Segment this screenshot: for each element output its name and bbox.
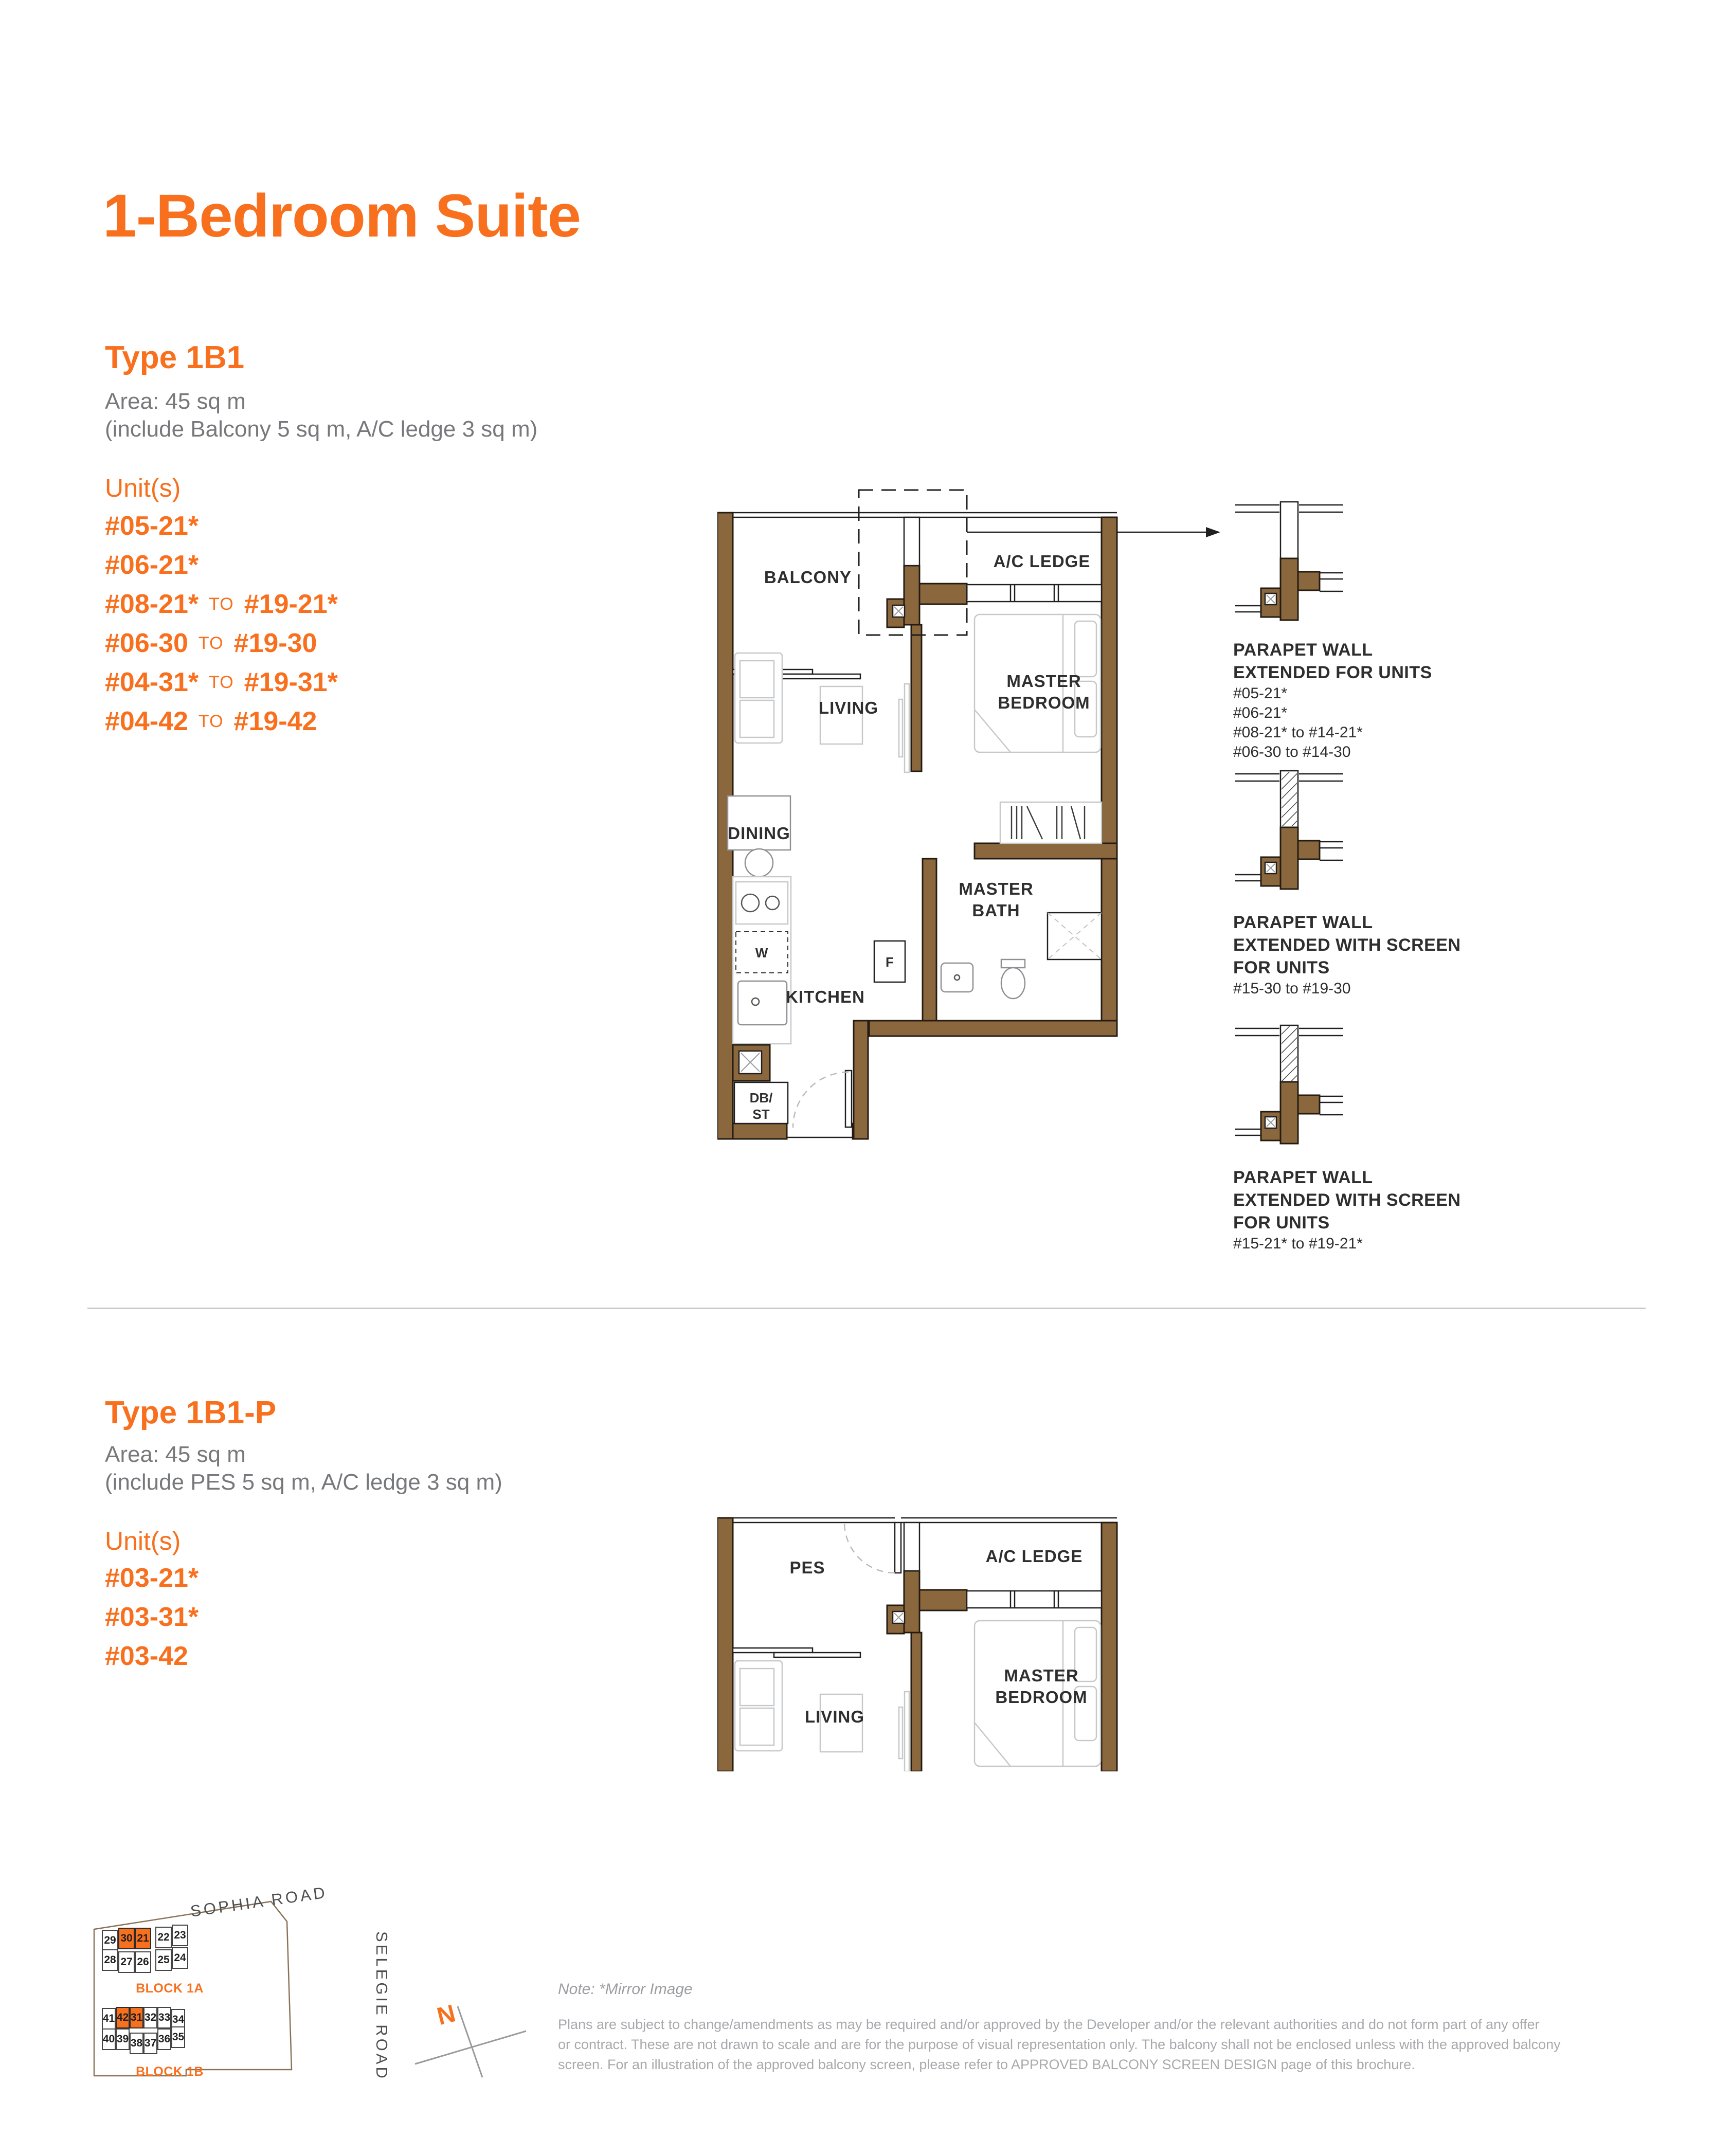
block-label-2: BLOCK 1B (136, 2064, 204, 2079)
label-master-bath-1: MASTER (959, 879, 1033, 898)
label-washer: W (755, 945, 768, 961)
unit-range: #03-42 (105, 1642, 199, 1670)
unit-range: #04-31*TO#19-31* (105, 668, 338, 696)
disclaimer-line-3: screen. For an illustration of the appro… (558, 2055, 1561, 2075)
label-fridge: F (886, 954, 894, 970)
type-1b1-heading: Type 1B1 (105, 339, 244, 376)
parapet-unit-line: #08-21* to #14-21* (1233, 723, 1475, 742)
map-unit-39: 39 (116, 2028, 130, 2050)
type-1b1p-units-list: #03-21*#03-31*#03-42 (105, 1564, 199, 1681)
map-unit-27: 27 (118, 1951, 135, 1973)
label-living: LIVING (819, 698, 878, 717)
parapet-figure-2 (1235, 769, 1343, 895)
unit-to-word: TO (199, 594, 244, 614)
road-label-selegie: SELEGIE ROAD (372, 1931, 391, 2081)
type-1b1p-area-include: (include PES 5 sq m, A/C ledge 3 sq m) (105, 1467, 502, 1497)
unit-to: #19-30 (234, 628, 317, 659)
label-ac-ledge: A/C LEDGE (994, 552, 1091, 571)
type-1b1p-heading: Type 1B1-P (105, 1394, 276, 1431)
page-title: 1-Bedroom Suite (103, 181, 581, 251)
map-unit-32: 32 (143, 2007, 157, 2028)
block-label-1: BLOCK 1A (136, 1981, 204, 1996)
section-divider (87, 1308, 1646, 1309)
unit-to: #19-21* (244, 589, 338, 620)
type-1b1p-units-label: Unit(s) (105, 1526, 181, 1556)
map-unit-37: 37 (143, 2033, 157, 2054)
unit-from: #05-21* (105, 511, 199, 541)
unit-to-word: TO (188, 633, 234, 654)
unit-range: #03-21* (105, 1564, 199, 1592)
unit-from: #04-42 (105, 706, 188, 737)
unit-to: #19-42 (234, 706, 317, 737)
parapet-unit-line: #06-30 to #14-30 (1233, 742, 1475, 762)
map-unit-26: 26 (135, 1951, 151, 1973)
mirror-note: Note: *Mirror Image (558, 1981, 693, 1998)
north-arrow: N (409, 1986, 532, 2089)
unit-to: #19-31* (244, 667, 338, 698)
label-master-bedroom-2: BEDROOM (998, 693, 1090, 712)
map-unit-42: 42 (116, 2007, 130, 2028)
floor-plan-1b1p: PES A/C LEDGE LIVING MASTER BEDROOM (717, 1491, 1124, 1771)
parapet-title-line: EXTENDED FOR UNITS (1233, 661, 1475, 684)
disclaimer: Plans are subject to change/amendments a… (558, 2015, 1561, 2075)
label-ac-ledge-p: A/C LEDGE (986, 1547, 1083, 1566)
type-1b1-area: Area: 45 sq m (105, 387, 246, 416)
map-unit-40: 40 (102, 2028, 116, 2050)
parapet-note-2: PARAPET WALLEXTENDED WITH SCREENFOR UNIT… (1233, 911, 1475, 999)
parapet-title-line: FOR UNITS (1233, 956, 1475, 979)
unit-from: #03-42 (105, 1641, 188, 1672)
type-1b1-area-include: (include Balcony 5 sq m, A/C ledge 3 sq … (105, 414, 537, 444)
map-unit-25: 25 (155, 1949, 172, 1971)
parapet-figure-3 (1235, 1023, 1343, 1149)
unit-range: #08-21*TO#19-21* (105, 590, 338, 618)
floor-plan-1b1: BALCONY A/C LEDGE LIVING MASTER BEDROOM … (717, 483, 1232, 1172)
label-db-2: ST (752, 1107, 769, 1122)
map-unit-38: 38 (130, 2033, 143, 2054)
label-balcony: BALCONY (764, 568, 852, 587)
map-unit-41: 41 (102, 2008, 116, 2030)
unit-range: #06-30TO#19-30 (105, 629, 338, 657)
parapet-title-line: EXTENDED WITH SCREEN (1233, 1189, 1475, 1211)
parapet-title-line: FOR UNITS (1233, 1211, 1475, 1234)
unit-from: #06-21* (105, 550, 199, 581)
label-master-bedroom-p-2: BEDROOM (995, 1688, 1087, 1707)
parapet-unit-line: #06-21* (1233, 703, 1475, 723)
map-unit-24: 24 (172, 1947, 188, 1969)
map-unit-33: 33 (157, 2007, 171, 2028)
type-1b1-units-list: #05-21*#06-21*#08-21*TO#19-21*#06-30TO#1… (105, 512, 338, 747)
label-db-1: DB/ (750, 1090, 773, 1106)
label-pes: PES (789, 1558, 825, 1577)
unit-range: #06-21* (105, 551, 338, 579)
label-master-bedroom-p-1: MASTER (1004, 1666, 1078, 1685)
parapet-title-line: PARAPET WALL (1233, 911, 1475, 934)
unit-from: #03-31* (105, 1602, 199, 1633)
map-unit-28: 28 (102, 1949, 118, 1971)
parapet-note-1: PARAPET WALLEXTENDED FOR UNITS#05-21*#06… (1233, 639, 1475, 762)
label-master-bath-2: BATH (972, 901, 1020, 920)
unit-range: #05-21* (105, 512, 338, 540)
disclaimer-line-1: Plans are subject to change/amendments a… (558, 2015, 1561, 2035)
map-unit-22: 22 (155, 1927, 172, 1948)
unit-from: #08-21* (105, 589, 199, 620)
map-unit-35: 35 (171, 2026, 185, 2048)
north-label: N (435, 2000, 458, 2031)
unit-from: #06-30 (105, 628, 188, 659)
parapet-title-line: PARAPET WALL (1233, 639, 1475, 661)
type-1b1-units-label: Unit(s) (105, 473, 181, 503)
parapet-title-line: EXTENDED WITH SCREEN (1233, 934, 1475, 956)
parapet-unit-line: #15-30 to #19-30 (1233, 979, 1475, 999)
unit-to-word: TO (188, 712, 234, 732)
unit-range: #03-31* (105, 1603, 199, 1631)
unit-range: #04-42TO#19-42 (105, 708, 338, 735)
unit-from: #03-21* (105, 1563, 199, 1593)
parapet-figure-1 (1235, 500, 1343, 626)
type-1b1p-area: Area: 45 sq m (105, 1440, 246, 1469)
disclaimer-line-2: or contract. These are not drawn to scal… (558, 2035, 1561, 2055)
unit-from: #04-31* (105, 667, 199, 698)
map-unit-21: 21 (135, 1928, 151, 1949)
parapet-unit-line: #05-21* (1233, 684, 1475, 703)
parapet-unit-line: #15-21* to #19-21* (1233, 1234, 1475, 1254)
map-unit-36: 36 (157, 2028, 171, 2050)
label-dining: DINING (728, 824, 790, 843)
parapet-note-3: PARAPET WALLEXTENDED WITH SCREENFOR UNIT… (1233, 1166, 1475, 1254)
label-master-bedroom-1: MASTER (1006, 672, 1081, 691)
map-unit-30: 30 (118, 1928, 135, 1949)
map-unit-23: 23 (172, 1925, 188, 1946)
parapet-title-line: PARAPET WALL (1233, 1166, 1475, 1189)
map-unit-29: 29 (102, 1930, 118, 1951)
label-kitchen: KITCHEN (786, 987, 865, 1006)
map-unit-31: 31 (130, 2007, 143, 2028)
label-living-p: LIVING (805, 1707, 864, 1726)
unit-to-word: TO (199, 673, 244, 693)
